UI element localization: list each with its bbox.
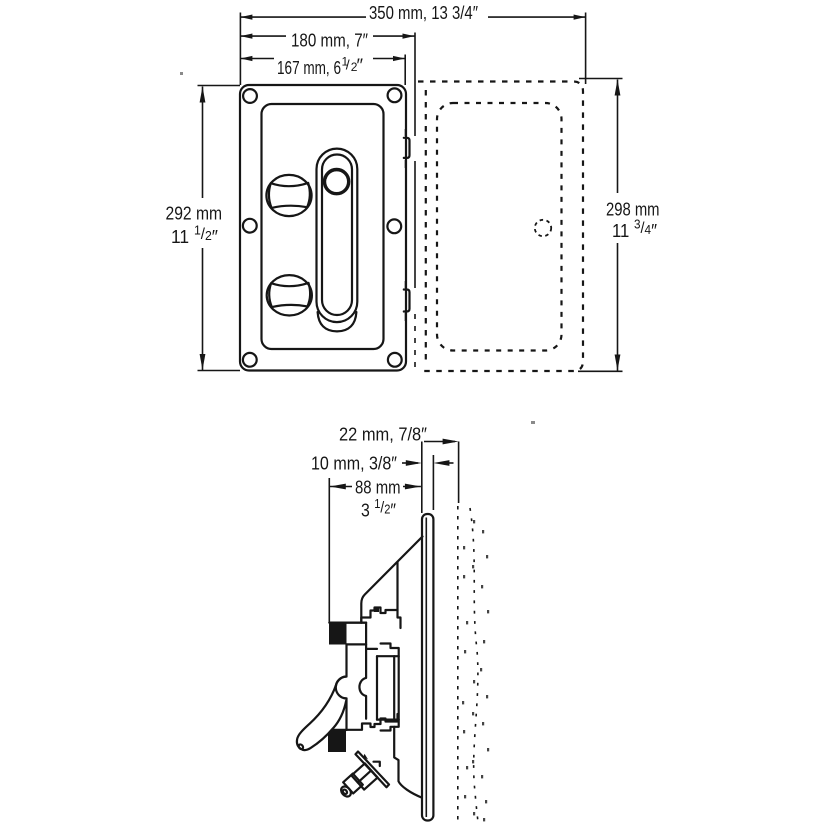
svg-text:167 mm, 6: 167 mm, 6 bbox=[277, 57, 341, 78]
svg-text:10 mm, 3/8″: 10 mm, 3/8″ bbox=[311, 453, 397, 474]
svg-text:180 mm, 7″: 180 mm, 7″ bbox=[291, 30, 368, 51]
svg-text:88 mm: 88 mm bbox=[355, 477, 401, 498]
svg-text:22 mm, 7/8″: 22 mm, 7/8″ bbox=[339, 424, 427, 445]
svg-text:292 mm: 292 mm bbox=[166, 203, 223, 224]
svg-text:/: / bbox=[346, 57, 350, 73]
svg-text:298 mm: 298 mm bbox=[606, 199, 660, 220]
svg-text:″: ″ bbox=[357, 55, 364, 76]
svg-text:350 mm, 13 3/4″: 350 mm, 13 3/4″ bbox=[369, 2, 478, 23]
